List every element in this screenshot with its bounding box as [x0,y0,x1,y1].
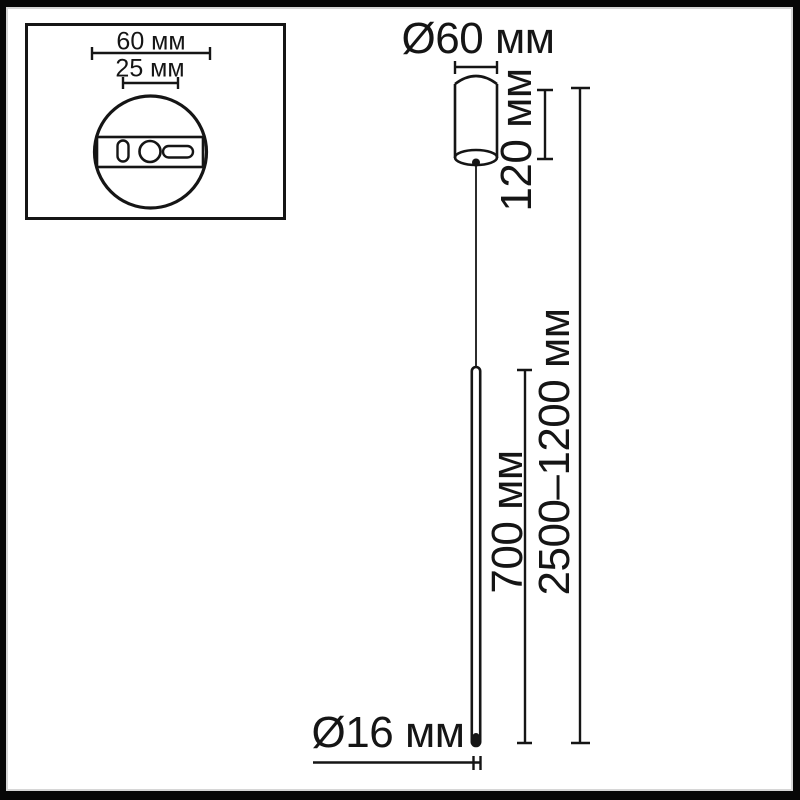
tube-length-label: 700 мм [483,450,533,593]
canopy-top-arc [455,76,497,84]
product-dimension-diagram: 60 мм 25 мм Ø60 мм 120 мм 700 мм 2500–12… [0,0,800,800]
tube-lamp-body [472,367,480,746]
diagram-linework [0,0,800,800]
canopy-height-label: 120 мм [492,68,542,211]
inset-mount-spacing-label: 25 мм [115,55,184,84]
canopy-sides [455,84,497,158]
leader-line-tube-diameter [313,756,481,770]
inset-plate-diameter-label: 60 мм [116,28,185,57]
overall-height-label: 2500–1200 мм [530,309,580,596]
canopy-diameter-label: Ø60 мм [402,14,555,64]
cable-attachment-dot [472,159,480,167]
tube-diameter-label: Ø16 мм [312,708,465,758]
tube-lamp-tip [473,733,480,746]
